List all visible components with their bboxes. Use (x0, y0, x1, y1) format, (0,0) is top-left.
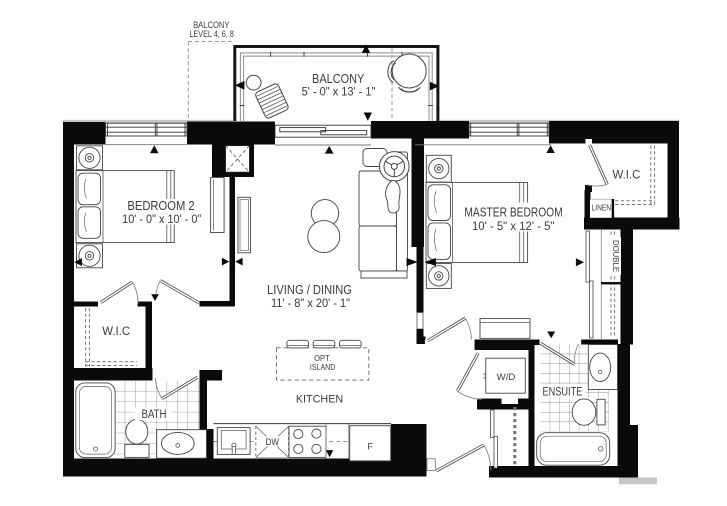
svg-text:W.I.C: W.I.C (102, 326, 130, 338)
svg-text:F: F (367, 441, 373, 451)
svg-text:10' - 0" x 10' - 0": 10' - 0" x 10' - 0" (122, 214, 201, 226)
svg-text:DOUBLE: DOUBLE (611, 240, 620, 272)
svg-text:MASTER BEDROOM: MASTER BEDROOM (464, 207, 562, 220)
svg-text:LEVEL 4, 6, 8: LEVEL 4, 6, 8 (189, 28, 234, 39)
svg-text:W.I.C: W.I.C (612, 169, 640, 181)
svg-text:W/D: W/D (497, 372, 516, 383)
svg-text:BEDROOM 2: BEDROOM 2 (127, 198, 194, 213)
svg-text:BATH: BATH (142, 408, 167, 421)
svg-text:DW: DW (266, 436, 280, 447)
svg-text:ISLAND: ISLAND (310, 362, 336, 372)
svg-text:5' - 0" x 13' - 1": 5' - 0" x 13' - 1" (302, 86, 376, 98)
svg-text:10' - 5" x 12' - 5": 10' - 5" x 12' - 5" (472, 221, 554, 233)
svg-text:LINEN: LINEN (592, 203, 612, 213)
svg-text:KITCHEN: KITCHEN (296, 394, 343, 406)
svg-text:ENSUITE: ENSUITE (542, 385, 582, 398)
svg-text:11' - 8" x 20' - 1": 11' - 8" x 20' - 1" (271, 298, 350, 310)
svg-text:LIVING / DINING: LIVING / DINING (267, 282, 352, 297)
svg-text:BALCONY: BALCONY (312, 72, 364, 86)
